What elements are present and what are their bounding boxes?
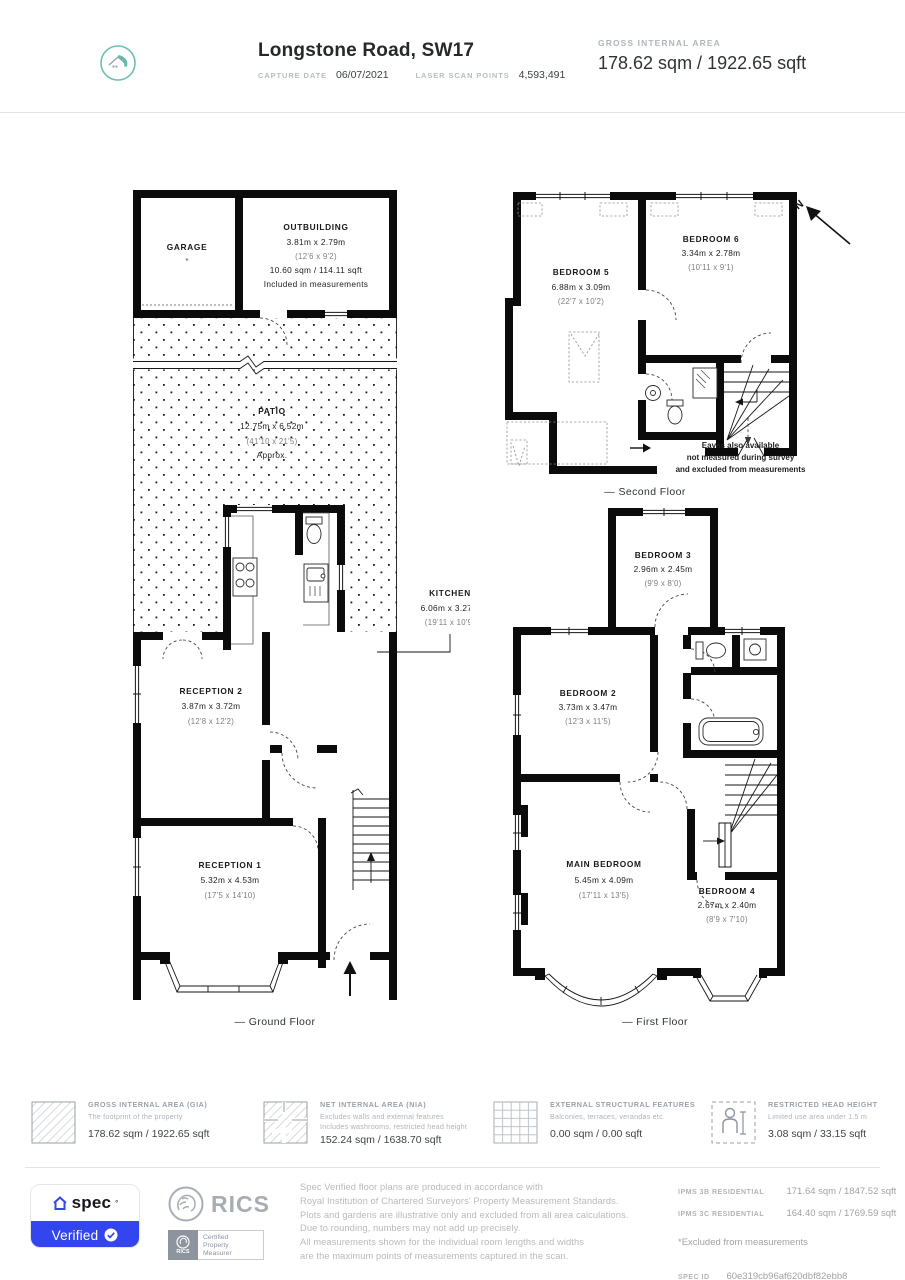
bedroom5-label: BEDROOM 5 (553, 267, 610, 277)
gia-value: 178.62 sqm / 1922.65 sqft (598, 53, 806, 74)
legend-esf-desc: Balconies, terraces, verandas etc. (550, 1112, 695, 1121)
kitchen-label: KITCHEN (429, 588, 470, 598)
reception2-dims-m: 3.87m x 3.72m (182, 701, 241, 711)
cert-line1: Certified (203, 1234, 263, 1242)
eaves-note-line3: and excluded from measurements (648, 464, 833, 476)
bedroom2-dims-m: 3.73m x 3.47m (559, 702, 618, 712)
outbuilding-area: 10.60 sqm / 114.11 sqft (270, 265, 363, 275)
patio-dims-ft: (41'10 x 21'5) (247, 437, 298, 446)
kitchen-callout-line (377, 634, 450, 652)
floorplan-document: Longstone Road, SW17 CAPTURE DATE 06/07/… (0, 0, 905, 1280)
footer-divider (25, 1167, 880, 1168)
first-floor-plan: BEDROOM 3 2.96m x 2.45m (9'9 x 8'0) BEDR… (505, 503, 805, 1015)
capture-date-label: CAPTURE DATE (258, 71, 327, 80)
reception2-label: RECEPTION 2 (179, 686, 242, 696)
toilet-icon (306, 517, 322, 524)
patio-label: PATIO (258, 406, 286, 416)
rics-mini-lion-icon (176, 1235, 190, 1249)
svg-text:N: N (792, 198, 806, 212)
north-arrow-icon: N (788, 192, 868, 252)
first-floor-label: — First Floor (505, 1016, 805, 1028)
second-floor-bathroom (646, 368, 718, 424)
spec-house-icon (52, 1196, 68, 1211)
disclaimer-line2: Royal Institution of Chartered Surveyors… (300, 1195, 665, 1209)
bedroom3-label: BEDROOM 3 (635, 550, 692, 560)
bedroom4-dims-ft: (8'9 x 7'10) (706, 915, 748, 924)
legend-rhh: RESTRICTED HEAD HEIGHT Limited use area … (710, 1100, 878, 1146)
reception1-label: RECEPTION 1 (198, 860, 261, 870)
toilet-icon (667, 400, 683, 406)
outbuilding-dims-ft: (12'6 x 9'2) (295, 252, 337, 261)
kitchen-dims-ft: (19'11 x 10'9) (425, 618, 470, 627)
second-floor-label: — Second Floor (495, 486, 795, 498)
entrance-arrow-icon (344, 961, 357, 996)
disclaimer-line1: Spec Verified floor plans are produced i… (300, 1181, 665, 1195)
bedroom6-label: BEDROOM 6 (683, 234, 740, 244)
rics-wordmark: RICS (211, 1191, 270, 1218)
bedroom3-dims-ft: (9'9 x 8'0) (644, 579, 681, 588)
bedroom6-dims-ft: (10'11 x 9'1) (688, 263, 734, 272)
capture-date-value: 06/07/2021 (336, 69, 389, 81)
legend-nia-desc2: Includes washrooms, restricted head heig… (320, 1122, 467, 1131)
bedroom5-dims-m: 6.88m x 3.09m (552, 282, 611, 292)
hob-icon (233, 558, 257, 596)
gia-hatch-icon (30, 1100, 78, 1146)
excluded-note: *Excluded from measurements (678, 1237, 898, 1248)
bedroom6-dims-m: 3.34m x 2.78m (682, 248, 741, 258)
eaves-note-line2: not measured during survey (648, 452, 833, 464)
capture-meta: CAPTURE DATE 06/07/2021 LASER SCAN POINT… (258, 69, 565, 81)
disclaimer-line5: All measurements shown for the individua… (300, 1236, 665, 1250)
outbuilding-label: OUTBUILDING (283, 222, 348, 232)
patio-note: Approx. (257, 450, 288, 460)
verified-check-icon (104, 1228, 118, 1242)
outbuilding-dims-m: 3.81m x 2.79m (287, 237, 346, 247)
legend-gia-title: GROSS INTERNAL AREA (GIA) (88, 1100, 209, 1109)
reception1-dims-ft: (17'5 x 14'10) (205, 891, 256, 900)
legend-rhh-desc: Limited use area under 1.5 m (768, 1112, 878, 1121)
bedroom5-dims-ft: (22'7 x 10'2) (558, 297, 604, 306)
laser-scan-label: LASER SCAN POINTS (416, 71, 510, 80)
bedroom4-bay-window (697, 975, 761, 1001)
disclaimer-line4: Due to rounding, numbers may not add up … (300, 1222, 665, 1236)
bedroom2-label: BEDROOM 2 (560, 688, 617, 698)
legend-rhh-title: RESTRICTED HEAD HEIGHT (768, 1100, 878, 1109)
second-floor-stairs (724, 365, 789, 440)
disclaimer: Spec Verified floor plans are produced i… (300, 1181, 665, 1264)
legend-nia: NET INTERNAL AREA (NIA) Excludes walls a… (262, 1100, 467, 1146)
nia-hatch-icon (262, 1100, 310, 1146)
disclaimer-line3: Plots and gardens are illustrative only … (300, 1209, 665, 1223)
spec-logo-icon (99, 44, 137, 82)
ipms-block: IPMS 3B RESIDENTIAL 171.64 sqm / 1847.52… (678, 1181, 898, 1280)
ipms-3b-value: 171.64 sqm / 1847.52 sqft (786, 1186, 896, 1197)
second-floor-walls (505, 192, 797, 474)
legend-nia-desc1: Excludes walls and external features (320, 1112, 467, 1121)
rics-certified-badge: RICS Certified Property Measurer (168, 1230, 270, 1260)
main-bedroom-dims-ft: (17'11 x 13'5) (579, 891, 629, 900)
bedroom4-dims-m: 2.67m x 2.40m (698, 900, 757, 910)
ipms-3b-label: IPMS 3B RESIDENTIAL (678, 1189, 782, 1196)
gross-internal-area: GROSS INTERNAL AREA 178.62 sqm / 1922.65… (598, 38, 806, 74)
garage-label: GARAGE (167, 242, 208, 252)
main-bedroom-label: MAIN BEDROOM (566, 859, 641, 869)
rics-block: RICS RICS Certified Property Measurer (168, 1186, 270, 1260)
legend-esf-title: EXTERNAL STRUCTURAL FEATURES (550, 1100, 695, 1109)
gia-label: GROSS INTERNAL AREA (598, 38, 806, 48)
eaves-note-line1: Eaves also available (648, 440, 833, 452)
verified-label: Verified (52, 1228, 99, 1243)
rics-mini-label: RICS (176, 1249, 189, 1255)
rhh-person-icon (710, 1100, 758, 1146)
legend-nia-title: NET INTERNAL AREA (NIA) (320, 1100, 467, 1109)
patio-dims-m: 12.75m x 6.52m (240, 421, 304, 431)
disclaimer-line6: are the maximum points of measurements c… (300, 1250, 665, 1264)
legend-gia-desc: The footprint of the property (88, 1112, 209, 1121)
outbuilding-note: Included in measurements (264, 279, 369, 289)
eaves-note: Eaves also available not measured during… (648, 440, 833, 476)
toilet-icon (696, 642, 703, 659)
legend-esf-value: 0.00 sqm / 0.00 sqft (550, 1128, 695, 1140)
spec-id-label: SPEC ID (678, 1274, 722, 1280)
laser-scan-value: 4,593,491 (519, 69, 566, 81)
first-floor-stairs (703, 759, 777, 867)
bow-window (545, 974, 657, 1006)
cert-line2: Property (203, 1242, 263, 1250)
bedroom3-dims-m: 2.96m x 2.45m (634, 564, 693, 574)
bay-window (165, 960, 283, 992)
garage-footnote: * (185, 257, 188, 266)
esf-grid-icon (492, 1100, 540, 1146)
header-divider (0, 112, 905, 113)
ipms-3c-value: 164.40 sqm / 1769.59 sqft (786, 1208, 896, 1219)
bedroom2-dims-ft: (12'3 x 11'5) (565, 717, 611, 726)
shower-icon (693, 368, 717, 398)
page-title: Longstone Road, SW17 (258, 40, 474, 62)
legend-rhh-value: 3.08 sqm / 33.15 sqft (768, 1128, 878, 1140)
rics-lion-icon (168, 1186, 204, 1222)
spec-brand-label: spec (72, 1193, 112, 1213)
ipms-3c-label: IPMS 3C RESIDENTIAL (678, 1211, 782, 1218)
legend-esf: EXTERNAL STRUCTURAL FEATURES Balconies, … (492, 1100, 695, 1146)
ground-floor-label: — Ground Floor (130, 1016, 420, 1028)
ground-floor-plan: GARAGE * OUTBUILDING 3.81m x 2.79m (12'6… (130, 186, 470, 1016)
legend-gia-value: 178.62 sqm / 1922.65 sqft (88, 1128, 209, 1140)
reception1-dims-m: 5.32m x 4.53m (201, 875, 260, 885)
legend-nia-value: 152.24 sqm / 1638.70 sqft (320, 1134, 467, 1146)
cert-line3: Measurer (203, 1250, 263, 1258)
kitchen-dims-m: 6.06m x 3.27m (421, 603, 470, 613)
spec-id-value: 60e319cb96af620dbf82ebb8 (726, 1271, 847, 1280)
ground-floor-stairs (351, 789, 389, 890)
reception2-dims-ft: (12'8 x 12'2) (188, 717, 234, 726)
legend-gia: GROSS INTERNAL AREA (GIA) The footprint … (30, 1100, 209, 1146)
bedroom4-label: BEDROOM 4 (699, 886, 756, 896)
spec-verified-badge: spec° Verified (30, 1184, 140, 1248)
main-bedroom-dims-m: 5.45m x 4.09m (575, 875, 634, 885)
